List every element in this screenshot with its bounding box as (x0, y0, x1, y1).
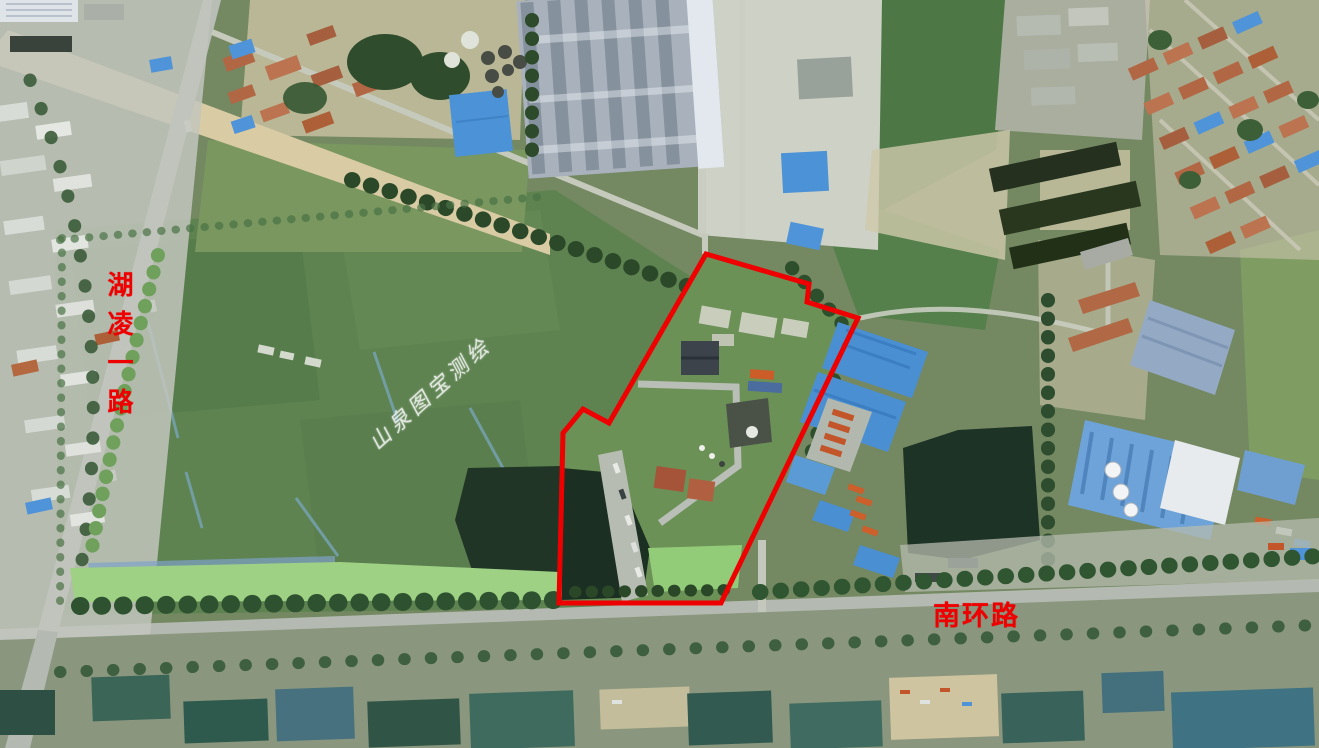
satellite-map-view: 湖凌一路 南环路 山泉图宝测绘 (0, 0, 1319, 748)
road-label-nanhuan-lu: 南环路 (933, 594, 1020, 633)
road-label-huling-yi-lu: 湖凌一路 (101, 271, 138, 427)
aerial-photo (0, 0, 1319, 748)
